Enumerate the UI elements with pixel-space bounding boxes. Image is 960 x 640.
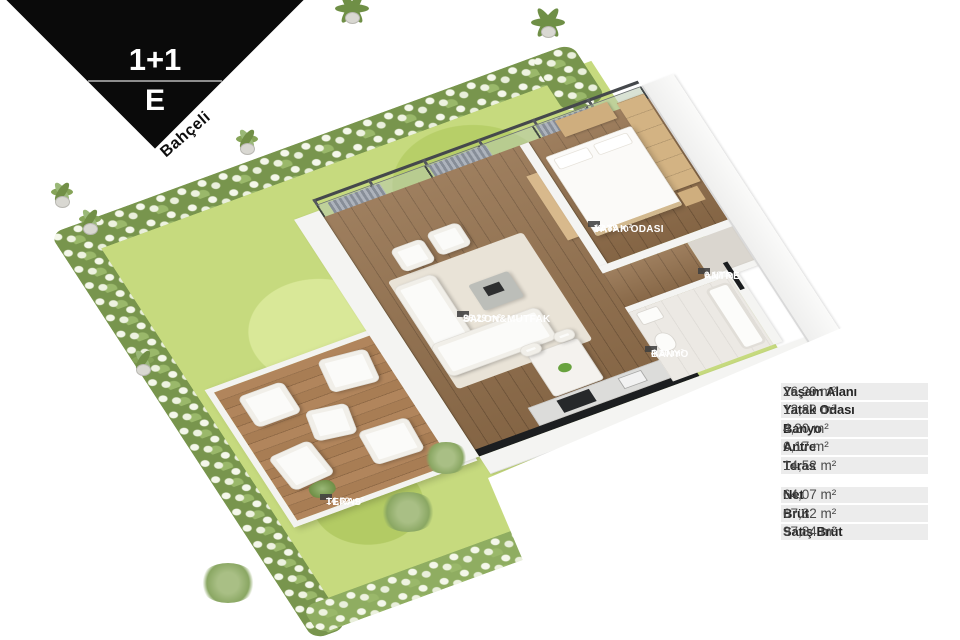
table-row-total: Satış Brüt 97,84 m² [781,524,928,541]
row-value: 14,52 m² [783,458,836,473]
area-table: Yaşam Alanı 26,29 m² Yatak Odası 12,89 m… [781,383,928,542]
badge-divider [88,80,222,82]
room-label-antre: ANTRE 6,17 m² [698,268,710,274]
table-section-gap [781,476,928,487]
row-value: 4,20 m² [783,421,829,436]
row-value: 26,29 m² [783,384,836,399]
deck-armchair [357,417,425,466]
deck-ottoman [304,403,358,442]
row-value: 97,84 m² [783,524,836,539]
table-row: Antre 6,17 m² [781,439,928,456]
table-row: Teras 14,52 m² [781,457,928,474]
table-row-total: Brüt 67,82 m² [781,505,928,522]
deck-armchair [317,348,381,393]
room-area: 6,17 m² [704,271,737,282]
room-area: 12,89 m² [594,224,632,235]
room-label-yatak-odasi: YATAK ODASI 12,89 m² [588,221,600,227]
room-area: 14,52 m² [326,497,364,508]
row-value: 12,89 m² [783,402,836,417]
row-value: 67,82 m² [783,506,836,521]
room-area: 26,29 m² [463,314,501,325]
table-row: Yatak Odası 12,89 m² [781,402,928,419]
row-value: 6,17 m² [783,439,829,454]
floor-plan-page: YATAK ODASI 12,89 m² SALON&MUTFAK 26,29 … [0,0,960,640]
table-row: Yaşam Alanı 26,29 m² [781,383,928,400]
table-row: Banyo 4,20 m² [781,420,928,437]
unit-type-label: 1+1 [95,42,215,78]
room-label-teras: TERAS 14,52 m² [320,494,332,500]
room-area: 4,20 m² [651,349,684,360]
room-label-salon-mutfak: SALON&MUTFAK 26,29 m² [457,311,469,317]
row-value: 64,07 m² [783,487,836,502]
room-label-banyo: BANYO 4,20 m² [645,346,657,352]
table-row-total: Net 64,07 m² [781,487,928,504]
deck-armchair [237,381,302,428]
